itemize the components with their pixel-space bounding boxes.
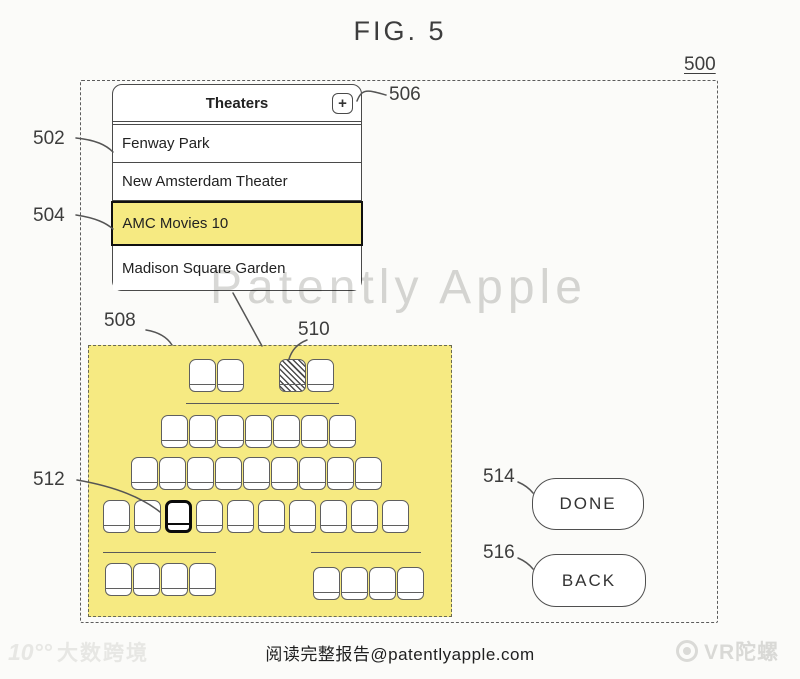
seat[interactable] (161, 563, 188, 596)
seat[interactable] (189, 415, 216, 448)
seat[interactable] (355, 457, 382, 490)
seat[interactable] (273, 415, 300, 448)
seat-row-1 (161, 415, 356, 448)
vr-gyro-logo: VR陀螺 (676, 636, 779, 666)
seat[interactable] (189, 359, 216, 392)
front-seat-group-right (313, 567, 424, 600)
seat[interactable] (299, 457, 326, 490)
selected-seat[interactable] (165, 500, 192, 533)
patently-apple-watermark: Patently Apple (210, 260, 587, 315)
back-button[interactable]: BACK (532, 554, 646, 607)
plus-icon: + (338, 95, 347, 112)
seat[interactable] (134, 500, 161, 533)
seat[interactable] (351, 500, 378, 533)
theater-list-header: Theaters + (113, 85, 361, 125)
seat[interactable] (196, 500, 223, 533)
done-button[interactable]: DONE (532, 478, 644, 530)
seat[interactable] (369, 567, 396, 600)
ref-504: 504 (33, 205, 65, 227)
figure-title: FIG. 5 (0, 16, 800, 47)
seat[interactable] (105, 563, 132, 596)
seat[interactable] (161, 415, 188, 448)
seat[interactable] (243, 457, 270, 490)
seat[interactable] (215, 457, 242, 490)
seat[interactable] (271, 457, 298, 490)
seat-map-divider-line-front-right (311, 552, 421, 553)
seat[interactable] (382, 500, 409, 533)
seat[interactable] (217, 415, 244, 448)
vr-gyro-logo-text: VR陀螺 (704, 636, 779, 666)
seat[interactable] (227, 500, 254, 533)
theater-list-title: Theaters (206, 95, 269, 112)
dashu-kuajing-logo: 10°° 大数跨境 (8, 637, 149, 667)
back-seat-pair-right (279, 359, 334, 392)
seat[interactable] (341, 567, 368, 600)
seat[interactable] (320, 500, 347, 533)
seat[interactable] (329, 415, 356, 448)
seat[interactable] (301, 415, 328, 448)
gyroscope-icon (676, 640, 698, 662)
unavailable-seat[interactable] (279, 359, 306, 392)
seat[interactable] (327, 457, 354, 490)
seat[interactable] (189, 563, 216, 596)
seat[interactable] (313, 567, 340, 600)
ref-502: 502 (33, 128, 65, 150)
seat[interactable] (103, 500, 130, 533)
seat-map-divider-line-front-left (103, 552, 216, 553)
ref-512: 512 (33, 469, 65, 491)
add-theater-button[interactable]: + (332, 93, 353, 114)
seat[interactable] (159, 457, 186, 490)
theater-item-new-amsterdam[interactable]: New Amsterdam Theater (113, 163, 361, 201)
theater-item-fenway-park[interactable]: Fenway Park (113, 125, 361, 163)
dashu-logo-icon: 10°° (8, 639, 52, 666)
seat[interactable] (258, 500, 285, 533)
seat-row-2 (131, 457, 382, 490)
seat[interactable] (131, 457, 158, 490)
front-seat-group-left (105, 563, 216, 596)
seat[interactable] (187, 457, 214, 490)
seat[interactable] (307, 359, 334, 392)
seat[interactable] (289, 500, 316, 533)
seat[interactable] (397, 567, 424, 600)
seat-row-3 (103, 500, 409, 533)
ref-500: 500 (684, 54, 716, 76)
theater-item-amc-movies-10-selected[interactable]: AMC Movies 10 (111, 201, 362, 246)
seat[interactable] (133, 563, 160, 596)
seat[interactable] (217, 359, 244, 392)
back-seat-pair-left (189, 359, 244, 392)
dashu-logo-text: 大数跨境 (57, 637, 149, 667)
seat-map-divider-line-top (186, 403, 339, 404)
seat-map (88, 345, 452, 617)
seat[interactable] (245, 415, 272, 448)
